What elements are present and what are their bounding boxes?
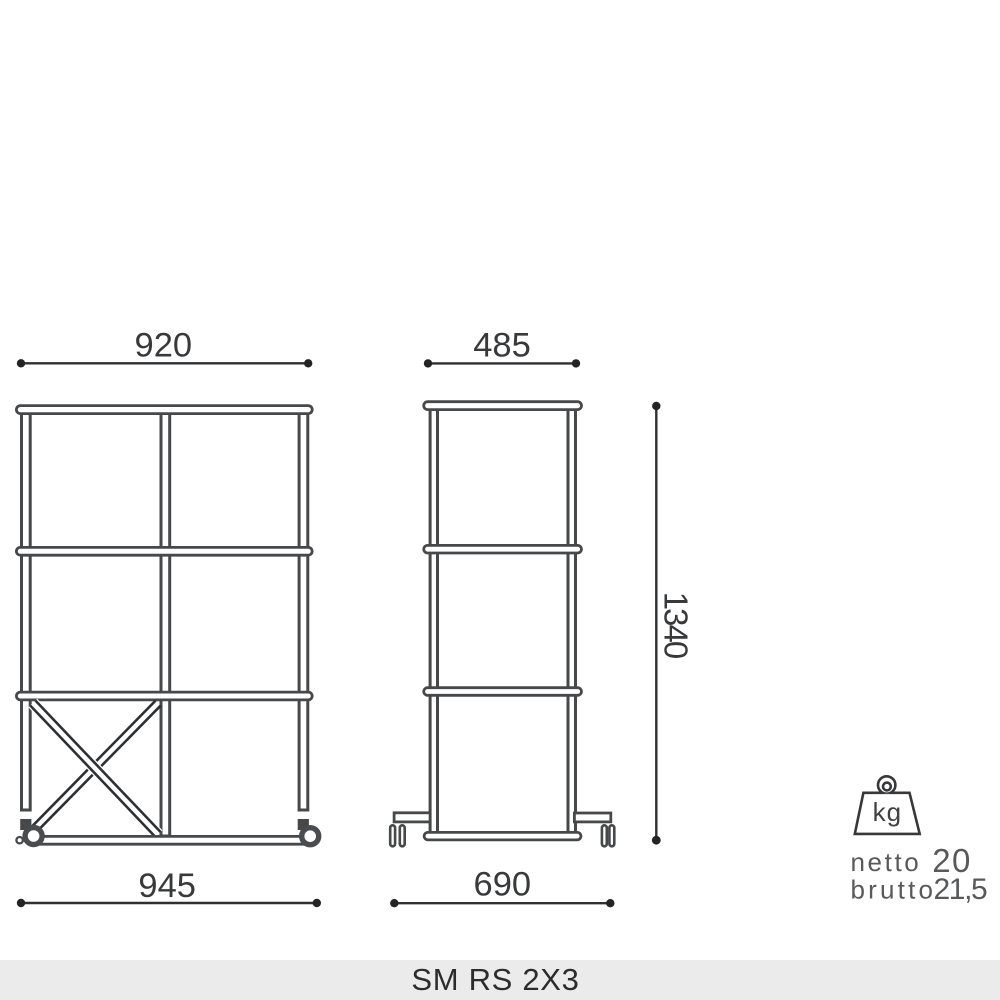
- svg-text:690: 690: [474, 866, 532, 904]
- svg-text:485: 485: [473, 327, 531, 365]
- svg-text:SM RS 2X3: SM RS 2X3: [411, 962, 579, 997]
- svg-text:netto: netto: [851, 847, 922, 877]
- svg-text:945: 945: [138, 867, 196, 905]
- svg-text:kg: kg: [873, 797, 902, 827]
- svg-text:brutto: brutto: [851, 875, 937, 905]
- svg-text:1340: 1340: [658, 592, 695, 659]
- svg-text:920: 920: [135, 327, 193, 365]
- svg-text:21,5: 21,5: [934, 873, 988, 906]
